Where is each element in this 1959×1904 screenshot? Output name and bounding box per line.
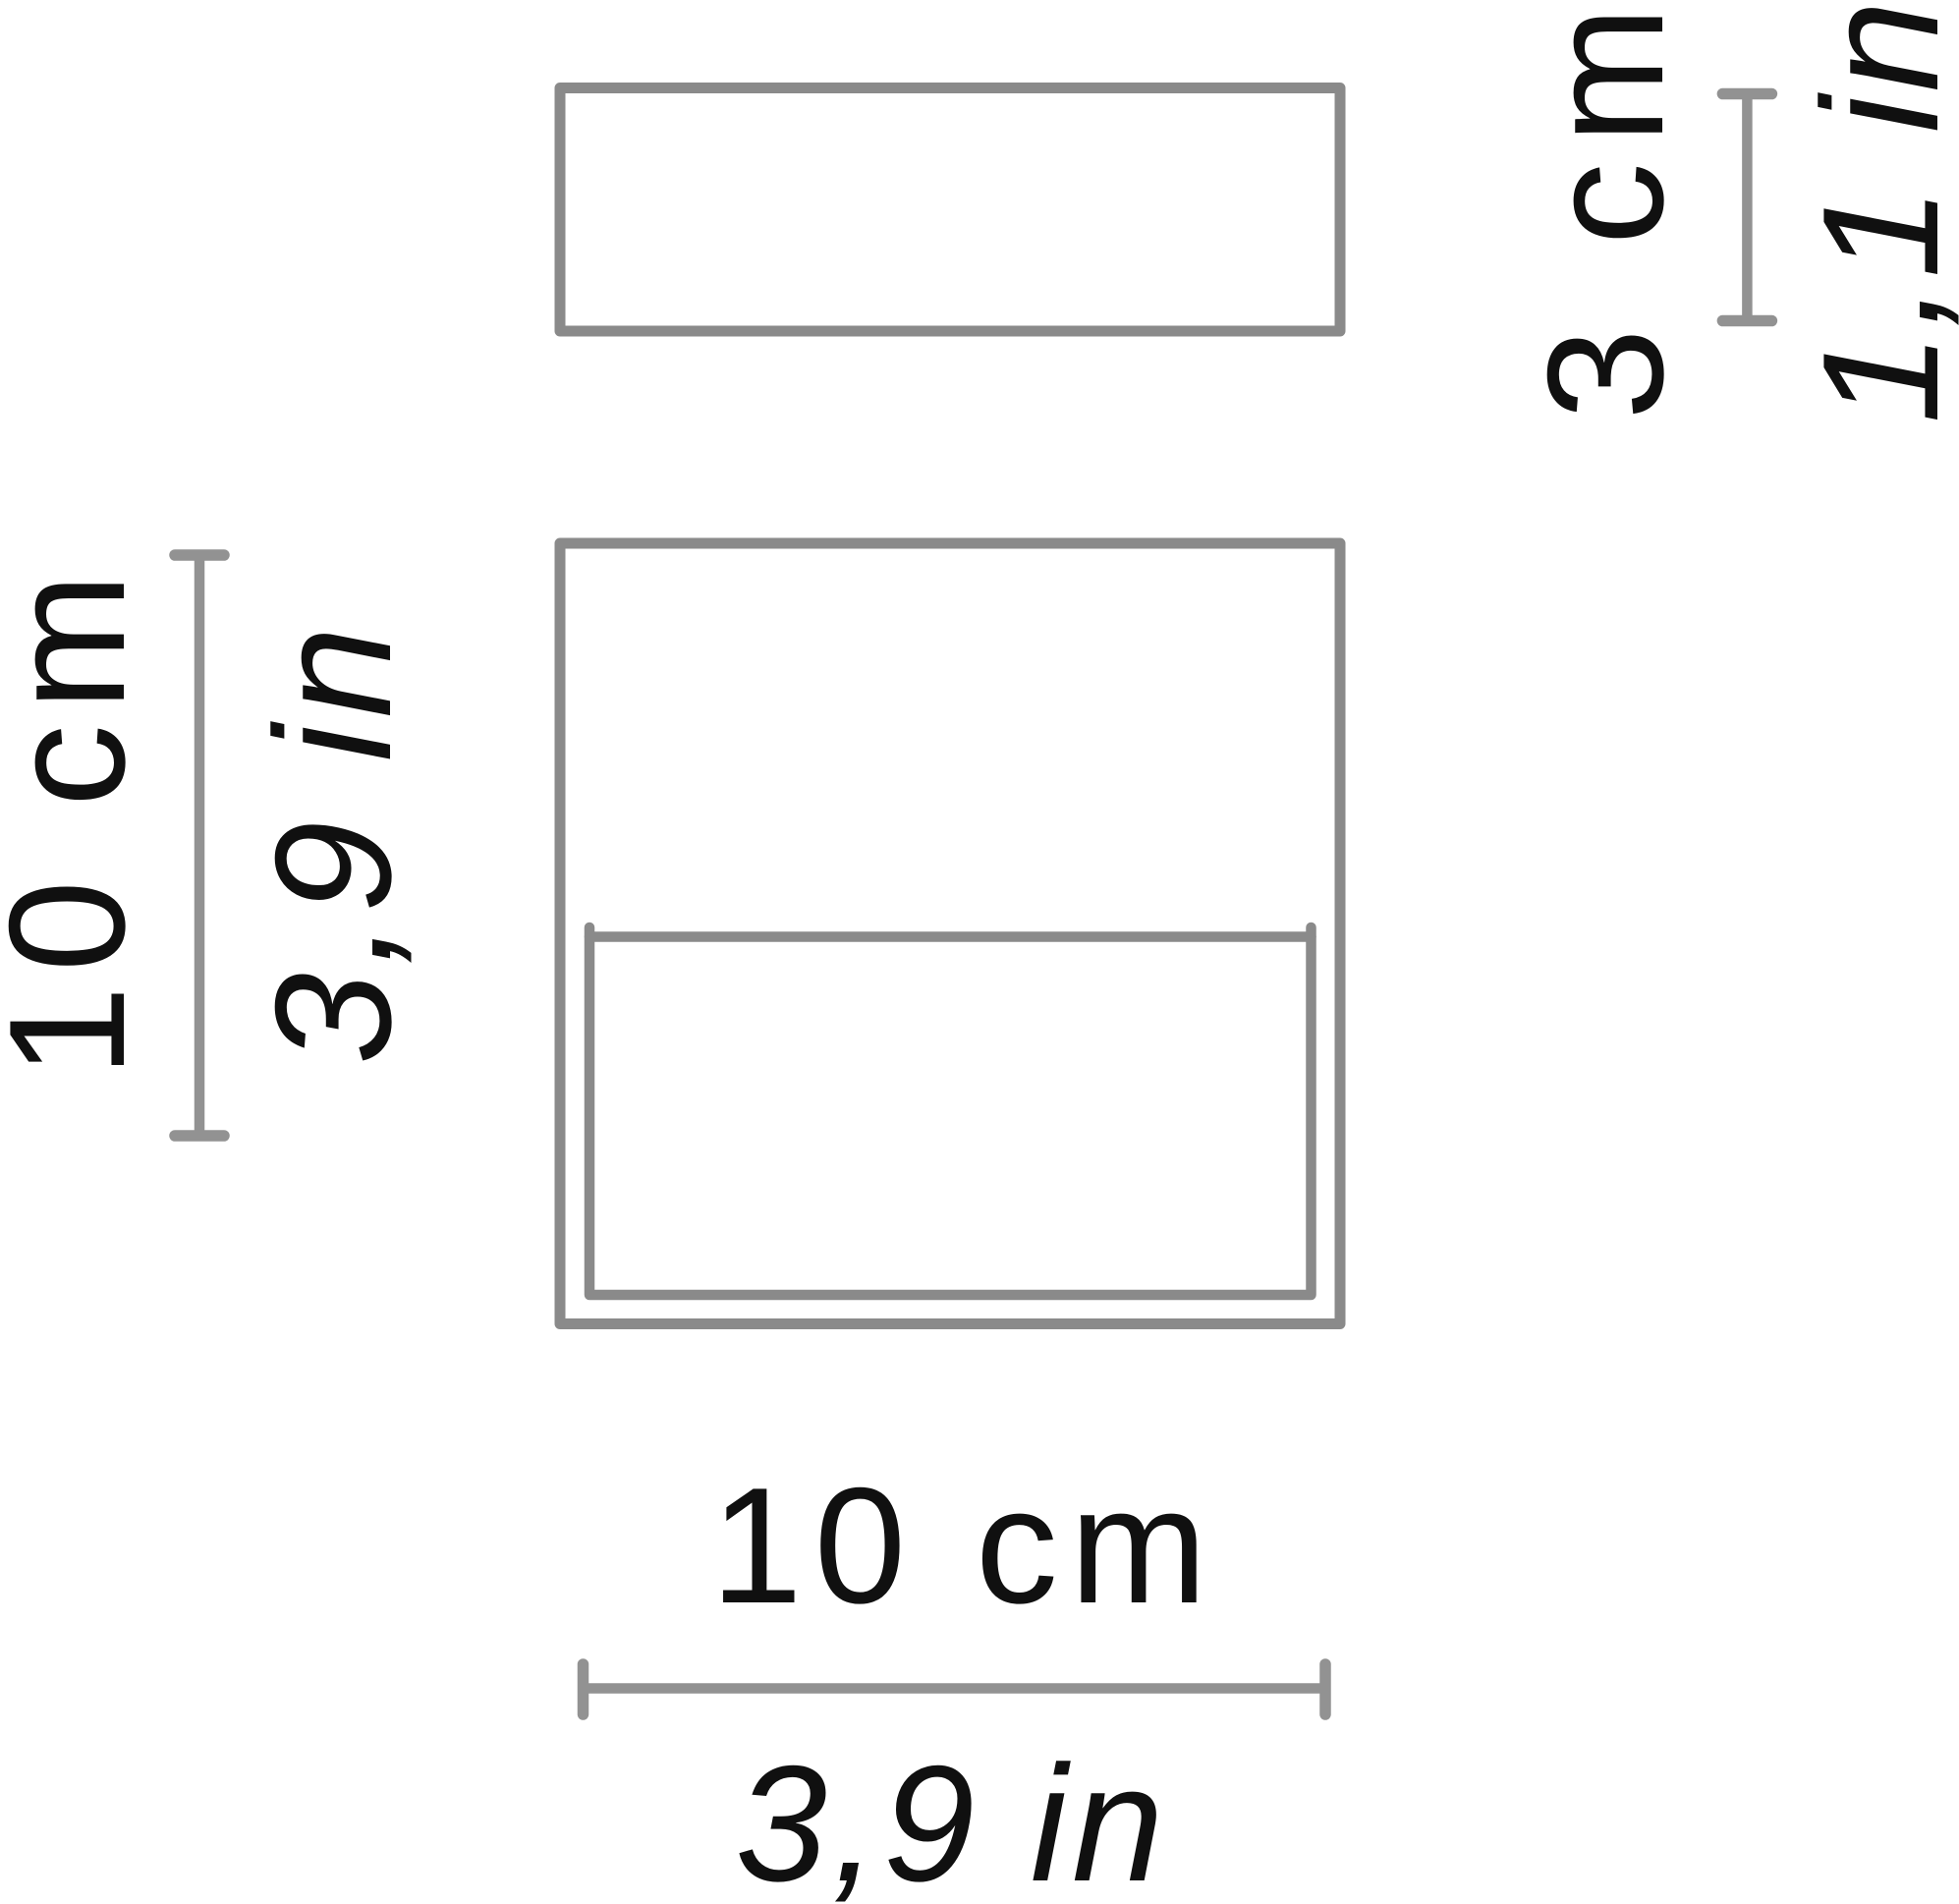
svg-text:10 cm: 10 cm (710, 1453, 1219, 1638)
svg-text:3,9 in: 3,9 in (736, 1731, 1169, 1904)
svg-text:3,9 in: 3,9 in (241, 620, 425, 1065)
svg-text:3 cm: 3 cm (1513, 0, 1698, 420)
svg-text:1,1 in: 1,1 in (1788, 0, 1959, 423)
svg-text:10 cm: 10 cm (0, 559, 159, 1078)
